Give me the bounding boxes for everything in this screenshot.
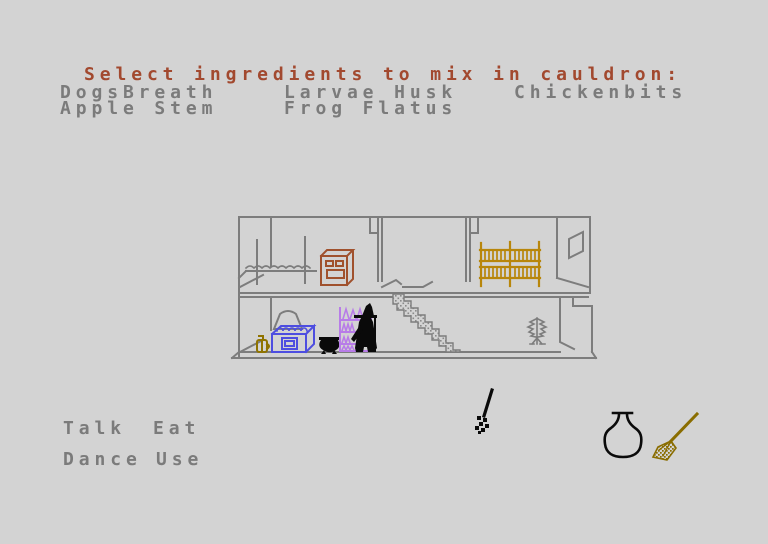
- window-icon: [569, 232, 583, 258]
- verb-talk[interactable]: Talk: [63, 420, 126, 438]
- verb-dance[interactable]: Dance: [63, 451, 142, 469]
- verb-use[interactable]: Use: [156, 451, 203, 469]
- ingredient-apple-stem[interactable]: Apple Stem: [60, 100, 217, 118]
- stove[interactable]: [321, 250, 353, 285]
- plant[interactable]: [528, 318, 546, 344]
- broom-icon[interactable]: [653, 414, 697, 460]
- middle-right-wall: [466, 217, 478, 281]
- bunk-bed[interactable]: [480, 242, 540, 286]
- witch-hat: [362, 303, 374, 316]
- game-screen: Select ingredients to mix in cauldron: D…: [0, 0, 768, 544]
- flask-icon[interactable]: [605, 413, 642, 457]
- stairwell-opening-lines: [382, 280, 432, 287]
- witch-hat-brim: [354, 315, 377, 318]
- upper-floor-line: [239, 293, 588, 297]
- stairs[interactable]: [393, 294, 460, 352]
- gold-jar[interactable]: [257, 336, 269, 352]
- witch-staff: [374, 317, 376, 352]
- ingredient-frog-flatus[interactable]: Frog Flatus: [284, 100, 457, 118]
- ingredient-chickenbits[interactable]: Chickenbits: [514, 84, 687, 102]
- dropped-broom-icon[interactable]: [475, 390, 492, 434]
- upper-right-wall: [557, 217, 588, 287]
- lower-right-walls: [560, 297, 596, 358]
- middle-left-wall: [370, 217, 382, 281]
- verb-eat[interactable]: Eat: [153, 420, 200, 438]
- bed[interactable]: [239, 237, 316, 284]
